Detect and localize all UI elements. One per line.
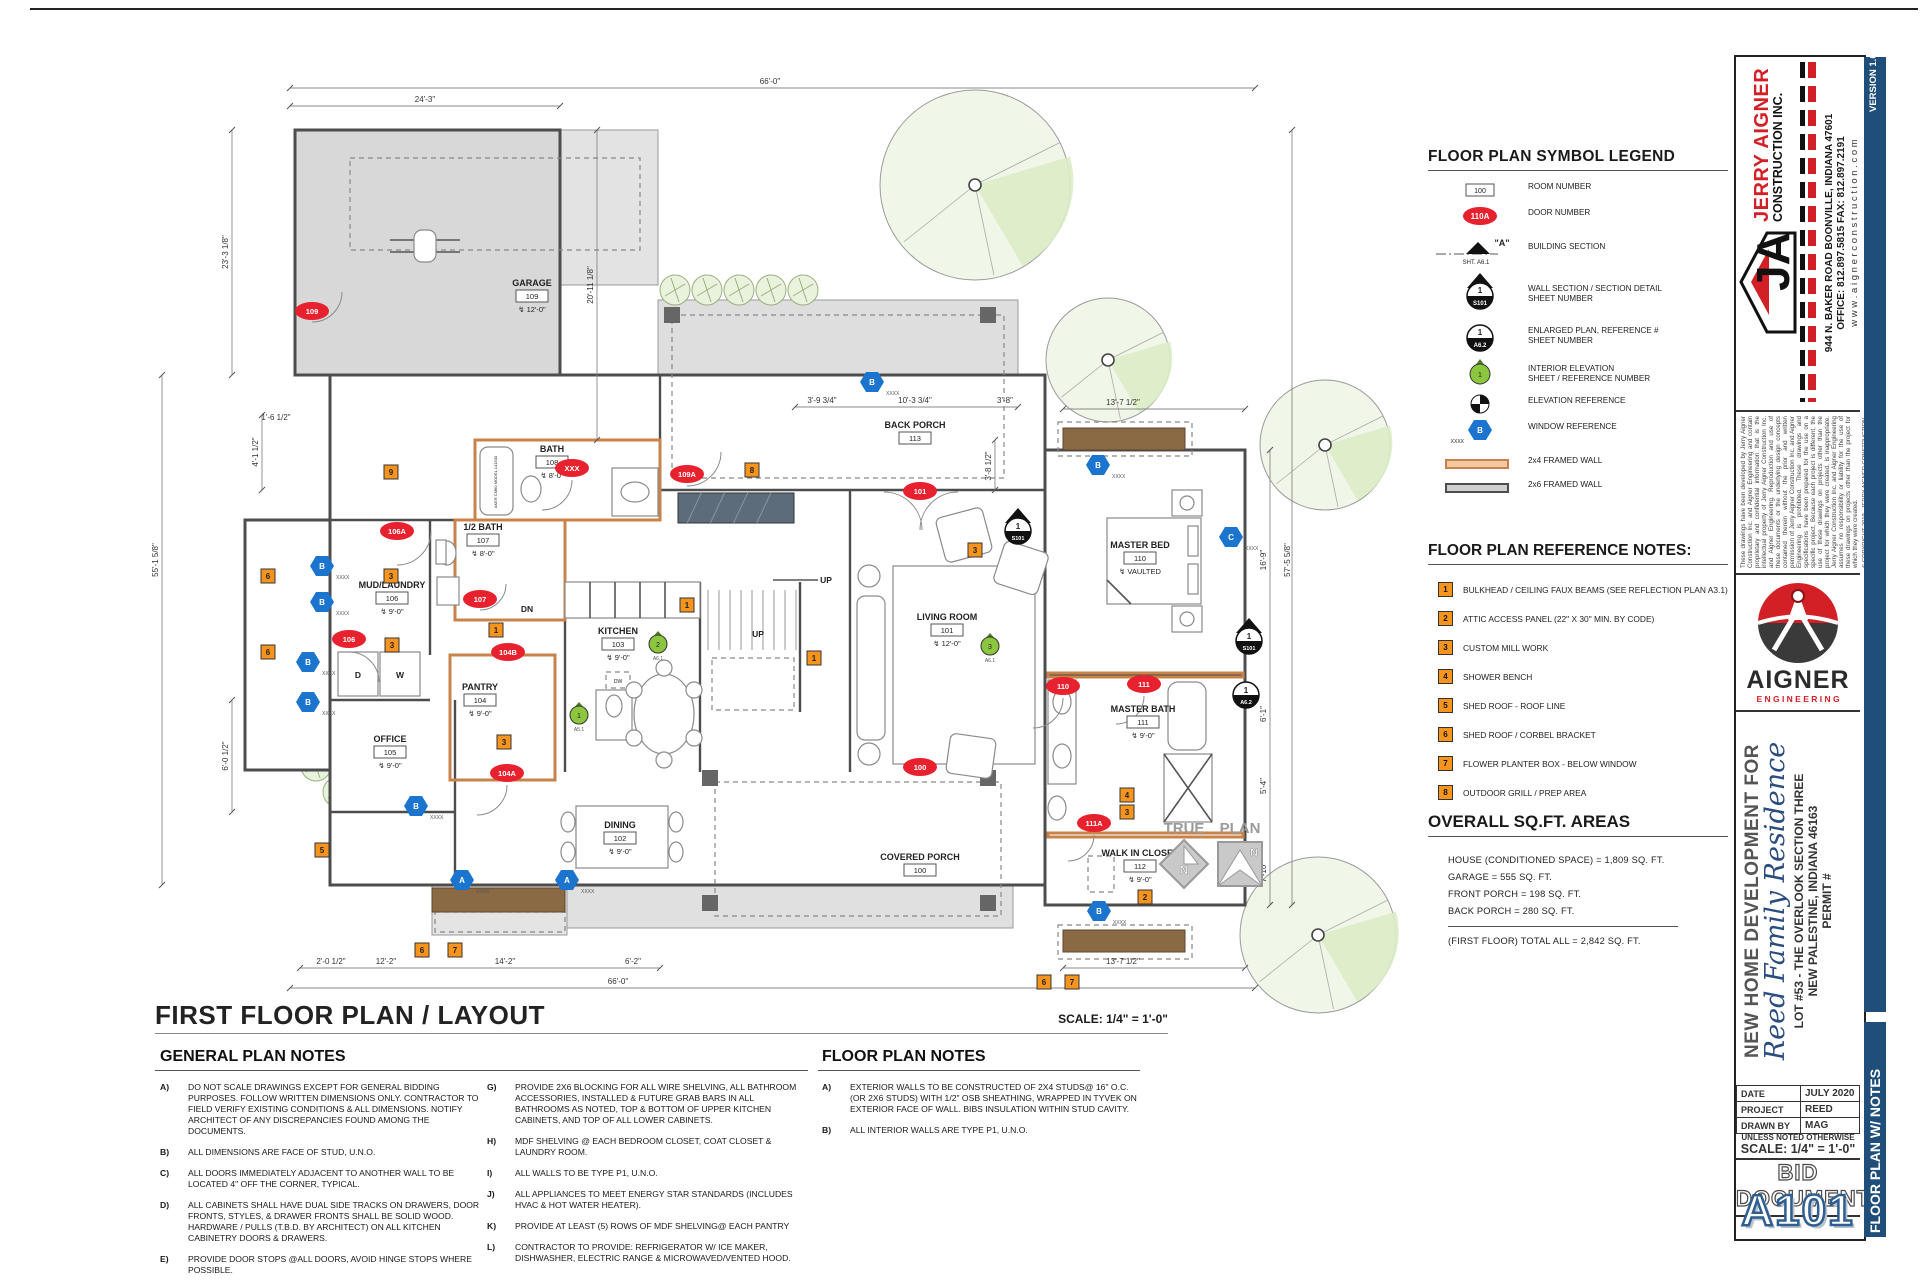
plan-annotation: DN	[521, 604, 533, 614]
refnote-number-tag: 3	[1438, 640, 1453, 655]
plan-text: XXXX	[1451, 439, 1465, 445]
north-arrows: N N	[1158, 838, 1268, 894]
interior-elev-number: 3	[988, 644, 992, 651]
window-ref-letter: A	[564, 876, 570, 885]
refnote-number-tag: 5	[1438, 698, 1453, 713]
furniture	[437, 577, 459, 605]
door-number: 111	[1138, 680, 1150, 689]
note-key: B)	[822, 1125, 850, 1136]
room-name: PANTRY	[462, 682, 498, 692]
refnote-number-tag: 2	[1438, 611, 1453, 626]
door-number: XXX	[564, 464, 579, 473]
interior-elev-sheet: A5.1	[574, 727, 585, 733]
window-ref-letter: B	[319, 562, 325, 571]
porch-column	[664, 307, 680, 323]
room-name: OFFICE	[374, 734, 407, 744]
furniture	[436, 540, 446, 564]
reference-note-number: 8	[750, 466, 755, 475]
building-section-symbol	[1466, 242, 1490, 254]
legend-item-label: 2x4 FRAMED WALL	[1528, 456, 1602, 466]
window-ref-model: XXXX	[322, 671, 336, 677]
window-ref-model: XXXX	[1112, 474, 1126, 480]
disclaimer-divider	[1736, 573, 1860, 575]
company-address-line: 944 N. BAKER ROAD BOONVILLE, INDIANA 476…	[1824, 62, 1836, 404]
room-number: 112	[1134, 862, 1146, 871]
project-city: NEW PALESTINE, INDIANA 46163	[1806, 722, 1820, 1080]
note-text: PROVIDE AT LEAST (5) ROWS OF MDF SHELVIN…	[515, 1221, 789, 1232]
refnote-text: SHOWER BENCH	[1463, 672, 1532, 682]
reference-note-number: 2	[1143, 893, 1148, 902]
refnote-item: 6SHED ROOF / CORBEL BRACKET	[1438, 727, 1728, 742]
reference-note-number: 1	[494, 626, 499, 635]
fixture	[626, 730, 642, 746]
plan-text: 100	[1474, 188, 1486, 195]
window-ref-letter: B	[305, 658, 311, 667]
note-key: D)	[160, 1200, 188, 1244]
ceiling-height: ↯ 9'-0"	[1128, 875, 1152, 884]
elev-ref-q2	[1471, 404, 1480, 413]
fixture	[656, 752, 672, 768]
reference-note-number: 1	[812, 654, 817, 663]
sqft-total: (FIRST FLOOR) TOTAL ALL = 2,842 SQ. FT.	[1448, 933, 1718, 950]
dimension-text: 4'-1 1/2"	[251, 437, 260, 466]
info-value: JULY 2020	[1801, 1086, 1860, 1102]
eng-sub: E N G I N E E R I N G	[1736, 694, 1860, 704]
info-key: DRAWN BY	[1737, 1118, 1801, 1134]
refnote-text: ATTIC ACCESS PANEL (22" X 30" MIN. BY CO…	[1463, 614, 1654, 624]
note-text: PROVIDE 2X6 BLOCKING FOR ALL WIRE SHELVI…	[515, 1082, 805, 1126]
note-key: C)	[160, 1168, 188, 1190]
window-ref-model: XXXX	[1245, 546, 1259, 552]
company-name-black: CONSTRUCTION INC.	[1772, 57, 1785, 222]
dimension-text: 66'-0"	[760, 77, 781, 86]
dimension-text: 3'-9 3/4"	[807, 396, 836, 405]
fixture	[858, 565, 880, 587]
tree-trunk	[969, 179, 981, 191]
refnote-number-tag: 6	[1438, 727, 1453, 742]
refnote-item: 4SHOWER BENCH	[1438, 669, 1728, 684]
refnote-item: 7FLOWER PLANTER BOX - BELOW WINDOW	[1438, 756, 1728, 771]
note-text: EXTERIOR WALLS TO BE CONSTRUCTED OF 2X4 …	[850, 1082, 1140, 1115]
disclaimer-text: These drawings have been developed by Je…	[1740, 416, 1859, 568]
section-sheet-number: S101	[1243, 646, 1256, 652]
wood-deck	[1063, 428, 1185, 450]
plan-annotation: D	[355, 670, 361, 680]
fixture	[669, 842, 683, 862]
note-key: A)	[160, 1082, 188, 1137]
note-item: E)PROVIDE DOOR STOPS @ALL DOORS, AVOID H…	[160, 1254, 482, 1276]
door-number: 111A	[1085, 819, 1103, 828]
dimension-text: 3'-8"	[997, 396, 1013, 405]
room-number: 110	[1134, 554, 1146, 563]
window-ref-model: XXXX	[1113, 920, 1127, 926]
note-key: I)	[487, 1168, 515, 1179]
sqft-line: FRONT PORCH = 198 SQ. FT.	[1448, 886, 1718, 903]
fixture	[858, 743, 880, 765]
sqft-line: HOUSE (CONDITIONED SPACE) = 1,809 SQ. FT…	[1448, 852, 1718, 869]
fixture	[686, 682, 702, 698]
dimension-text: 57'-5 5/8"	[1283, 543, 1292, 577]
plan-text: B	[1477, 426, 1483, 435]
plan-scale-note: SCALE: 1/4" = 1'-0"	[1000, 1012, 1168, 1026]
fixture	[686, 730, 702, 746]
sqft-line: GARAGE = 555 SQ. FT.	[1448, 869, 1718, 886]
window-ref-model: XXXX	[581, 889, 595, 895]
reference-note-number: 7	[453, 946, 458, 955]
ceiling-height: ↯ 9'-0"	[1131, 731, 1155, 740]
true-north-label: TRUE	[1158, 820, 1210, 837]
note-text: ALL DOORS IMMEDIATELY ADJACENT TO ANOTHE…	[188, 1168, 482, 1190]
sqft-list: HOUSE (CONDITIONED SPACE) = 1,809 SQ. FT…	[1448, 852, 1718, 950]
legend-item-label: WALL SECTION / SECTION DETAIL SHEET NUMB…	[1528, 284, 1662, 303]
plan-text: 1	[1478, 372, 1482, 379]
legend-title: FLOOR PLAN SYMBOL LEGEND	[1428, 148, 1675, 166]
company-address: 944 N. BAKER ROAD BOONVILLE, INDIANA 476…	[1824, 62, 1848, 404]
tree-trunk	[1312, 929, 1324, 941]
door-number: 104B	[499, 648, 518, 657]
plan-annotation: W	[396, 670, 405, 680]
note-text: MDF SHELVING @ EACH BEDROOM CLOSET, COAT…	[515, 1136, 805, 1158]
fixture	[656, 660, 672, 676]
door-number: 109A	[678, 470, 697, 479]
disclaimer: These drawings have been developed by Je…	[1740, 416, 1856, 568]
company-name-red: JERRY AIGNER	[1752, 57, 1772, 222]
legend-item-label: ENLARGED PLAN, REFERENCE # SHEET NUMBER	[1528, 326, 1659, 345]
reference-note-number: 3	[502, 738, 507, 747]
eng-divider	[1736, 710, 1860, 712]
note-text: ALL INTERIOR WALLS ARE TYPE P1, U.N.O.	[850, 1125, 1028, 1136]
reference-note-number: 3	[1125, 808, 1130, 817]
porch-column	[980, 895, 996, 911]
dimension-text: 13'-7 1/2"	[1106, 398, 1140, 407]
room-number: 101	[941, 626, 954, 635]
ceiling-height: ↯ 9'-0"	[468, 709, 492, 718]
general-notes-col1: A)DO NOT SCALE DRAWINGS EXCEPT FOR GENER…	[160, 1082, 482, 1280]
room-name: 1/2 BATH	[463, 522, 502, 532]
door-number: 110	[1057, 682, 1069, 691]
scale-note1: UNLESS NOTED OTHERWISE	[1736, 1133, 1860, 1142]
fixture	[561, 842, 575, 862]
elev-ref-q1	[1480, 395, 1489, 404]
window-ref-letter: B	[319, 598, 325, 607]
project-block: NEW HOME DEVELOPMENT FOR Reed Family Res…	[1742, 722, 1858, 1080]
room-number: 103	[612, 640, 625, 649]
wood-deck	[1063, 930, 1185, 952]
note-text: ALL APPLIANCES TO MEET ENERGY STAR STAND…	[515, 1189, 805, 1211]
scale-note2: SCALE: 1/4" = 1'-0"	[1736, 1142, 1860, 1156]
plan-annotation: UP	[820, 575, 832, 585]
fixture	[1053, 744, 1071, 768]
reference-note-number: 3	[389, 572, 394, 581]
door-number: 106A	[388, 527, 407, 536]
ceiling-height: ↯ VAULTED	[1119, 567, 1161, 576]
note-item: B)ALL DIMENSIONS ARE FACE OF STUD, U.N.O…	[160, 1147, 482, 1158]
room-number: 107	[477, 536, 490, 545]
dimension-text: 6'-1"	[1259, 706, 1268, 722]
window-ref-model: XXXX	[430, 815, 444, 821]
reference-note-number: 6	[1042, 978, 1047, 987]
plan-text: SHT. A6.1	[1463, 260, 1490, 266]
plan-annotation: DW	[614, 679, 623, 685]
room-number: 113	[909, 434, 921, 443]
info-value: REED	[1801, 1102, 1860, 1118]
legend-symbols: 100110A"A"SHT. A6.11S1011A6.21BXXXX	[1428, 176, 1523, 506]
furniture	[1168, 682, 1206, 750]
fixture	[634, 674, 694, 754]
dimension-text: 5'-4"	[1259, 778, 1268, 794]
section-sheet-number: A6.2	[1240, 700, 1252, 706]
note-text: ALL WALLS TO BE TYPE P1, U.N.O.	[515, 1168, 658, 1179]
project-lot: LOT #53 - THE OVERLOOK SECTION THREE	[1792, 722, 1806, 1080]
accent-dashes-red	[1808, 62, 1816, 402]
info-key: DATE	[1737, 1086, 1801, 1102]
refnotes-list: 1BULKHEAD / CEILING FAUX BEAMS (SEE REFL…	[1438, 582, 1728, 814]
dimension-text: 6'-2"	[625, 957, 641, 966]
note-item: J)ALL APPLIANCES TO MEET ENERGY STAR STA…	[487, 1189, 805, 1211]
door-number: 109	[306, 307, 319, 316]
fixture	[1180, 496, 1194, 510]
room-number: 104	[474, 696, 487, 705]
dimension-text: 24'-3"	[415, 95, 436, 104]
door-number: 104A	[498, 769, 517, 778]
plan-text: 1	[1478, 286, 1483, 295]
refnote-item: 1BULKHEAD / CEILING FAUX BEAMS (SEE REFL…	[1438, 582, 1728, 597]
fixture	[606, 695, 622, 717]
ceiling-height: ↯ 9'-0"	[378, 761, 402, 770]
sheet-number: A101	[1736, 1186, 1860, 1236]
fixture	[1048, 796, 1066, 820]
window-ref-model: XXXX	[336, 611, 350, 617]
furniture	[1188, 564, 1198, 594]
scale-block: UNLESS NOTED OTHERWISE SCALE: 1/4" = 1'-…	[1736, 1133, 1860, 1160]
refnote-number-tag: 7	[1438, 756, 1453, 771]
porch-column	[702, 770, 718, 786]
general-notes-col2: G)PROVIDE 2X6 BLOCKING FOR ALL WIRE SHEL…	[487, 1082, 805, 1274]
note-text: ALL DIMENSIONS ARE FACE OF STUD, U.N.O.	[188, 1147, 375, 1158]
furniture	[414, 230, 436, 262]
door-number: 101	[914, 487, 927, 496]
drawing-sheet: 66'-0"24'-3"23'-3 1/8"55'-1 5/8"4'-1 1/2…	[0, 0, 1920, 1280]
concrete-area	[560, 130, 658, 285]
info-value: MAG	[1801, 1118, 1860, 1134]
interior-elev-sheet: A6.1	[653, 656, 664, 662]
refnote-number-tag: 1	[1438, 582, 1453, 597]
note-text: CONTRACTOR TO PROVIDE: REFRIGERATOR W/ I…	[515, 1242, 805, 1264]
dimension-text: 2'-0 1/2"	[316, 957, 345, 966]
true-north-icon: N	[1160, 840, 1208, 888]
fixture	[621, 482, 649, 502]
room-number: 111	[1137, 718, 1148, 727]
window-ref-letter: B	[1095, 461, 1101, 470]
room-number: 106	[386, 594, 399, 603]
window-ref-letter: C	[1228, 533, 1234, 542]
window-ref-letter: A	[459, 876, 465, 885]
company-website: w w w . a i g n e r c o n s t r u c t i …	[1849, 62, 1862, 404]
svg-text:JA: JA	[1747, 232, 1797, 291]
note-text: PROVIDE DOOR STOPS @ALL DOORS, AVOID HIN…	[188, 1254, 482, 1276]
refnotes-rule	[1428, 564, 1728, 565]
company-divider	[1736, 410, 1860, 412]
fixture	[561, 812, 575, 832]
refnote-text: BULKHEAD / CEILING FAUX BEAMS (SEE REFLE…	[1463, 585, 1728, 595]
dimension-text: 55'-1 5/8"	[151, 543, 160, 577]
plan-text: 110A	[1471, 212, 1490, 221]
accent-dashes-black	[1800, 62, 1805, 402]
refnote-text: CUSTOM MILL WORK	[1463, 643, 1548, 653]
dimension-text: 16'-9"	[1259, 550, 1268, 571]
reference-note-number: 5	[320, 846, 325, 855]
fixture	[669, 812, 683, 832]
plan-annotation: UP	[752, 629, 764, 639]
door-number: 100	[914, 763, 927, 772]
info-row: PROJECTREED	[1737, 1102, 1860, 1118]
note-key: G)	[487, 1082, 515, 1126]
sqft-line: BACK PORCH = 280 SQ. FT.	[1448, 903, 1718, 920]
concrete-area	[565, 885, 1013, 928]
refnote-text: FLOWER PLANTER BOX - BELOW WINDOW	[1463, 759, 1637, 769]
window-ref-model: XXXX	[336, 575, 350, 581]
ceiling-height: ↯ 8'-0"	[471, 549, 495, 558]
room-name: DINING	[604, 820, 636, 830]
wall-2x4-symbol	[1446, 460, 1508, 468]
legend-item-label: WINDOW REFERENCE	[1528, 422, 1617, 432]
project-residence-name: Reed Family Residence	[1760, 722, 1791, 1080]
section-sheet-number: S101	[1012, 536, 1025, 542]
dimension-text: 66'-0"	[608, 977, 629, 986]
furniture	[1188, 526, 1198, 556]
note-item: C)ALL DOORS IMMEDIATELY ADJACENT TO ANOT…	[160, 1168, 482, 1190]
project-permit: PERMIT #	[1820, 722, 1834, 1080]
room-number: 102	[614, 834, 627, 843]
eng-name: AIGNER	[1736, 666, 1860, 695]
sqft-title: OVERALL SQ.FT. AREAS	[1428, 812, 1630, 832]
tree-trunk	[1102, 354, 1114, 366]
dimension-text: 1'-6 1/2"	[261, 413, 290, 422]
wall-2x6-symbol	[1446, 484, 1508, 492]
note-key: K)	[487, 1221, 515, 1232]
porch-column	[702, 895, 718, 911]
info-row: DRAWN BYMAG	[1737, 1118, 1860, 1134]
dimension-text: 3'-8 1/2"	[984, 451, 993, 480]
ceiling-height: ↯ 12'-0"	[933, 639, 961, 648]
sqft-divider	[1448, 926, 1678, 927]
refnote-number-tag: 8	[1438, 785, 1453, 800]
ceiling-height: ↯ 12'-0"	[518, 305, 546, 314]
note-item: A)EXTERIOR WALLS TO BE CONSTRUCTED OF 2X…	[822, 1082, 1140, 1115]
dimension-text: 14'-2"	[495, 957, 516, 966]
plan-text: 1	[1478, 328, 1483, 337]
window-ref-model: XXXX	[322, 711, 336, 717]
furniture	[857, 596, 885, 740]
note-item: H)MDF SHELVING @ EACH BEDROOM CLOSET, CO…	[487, 1136, 805, 1158]
floor-plan-notes-rule	[818, 1070, 1140, 1071]
reference-note-number: 7	[1070, 978, 1075, 987]
room-name: COVERED PORCH	[880, 852, 960, 862]
room-number: 109	[526, 292, 539, 301]
refnote-item: 8OUTDOOR GRILL / PREP AREA	[1438, 785, 1728, 800]
company-name: JERRY AIGNER CONSTRUCTION INC.	[1752, 57, 1800, 222]
plan-annotation: AKER CM60 MODEL 141500	[493, 455, 498, 508]
plan-north-label: PLAN	[1214, 820, 1266, 837]
refnote-text: SHED ROOF / CORBEL BRACKET	[1463, 730, 1596, 740]
room-name: GARAGE	[512, 278, 552, 288]
reference-note-number: 6	[266, 648, 271, 657]
door-number: 107	[474, 595, 487, 604]
legend-item-label: ELEVATION REFERENCE	[1528, 396, 1626, 406]
refnotes-title: FLOOR PLAN REFERENCE NOTES:	[1428, 542, 1692, 560]
general-notes-title: GENERAL PLAN NOTES	[160, 1048, 346, 1066]
plan-text: A6.2	[1474, 343, 1487, 349]
room-number: 105	[384, 748, 397, 757]
floor-plan-notes-list: A)EXTERIOR WALLS TO BE CONSTRUCTED OF 2X…	[822, 1082, 1140, 1146]
furniture-chair	[945, 733, 996, 779]
info-row: DATEJULY 2020	[1737, 1086, 1860, 1102]
note-key: A)	[822, 1082, 850, 1115]
door-number: 106	[343, 635, 356, 644]
dimension-text: 10'-3 3/4"	[898, 396, 932, 405]
note-text: DO NOT SCALE DRAWINGS EXCEPT FOR GENERAL…	[188, 1082, 482, 1137]
legend-item-label: ROOM NUMBER	[1528, 182, 1591, 192]
note-item: D)ALL CABINETS SHALL HAVE DUAL SIDE TRAC…	[160, 1200, 482, 1244]
legend-item-label: INTERIOR ELEVATION SHEET / REFERENCE NUM…	[1528, 364, 1650, 383]
reference-note-number: 9	[389, 468, 394, 477]
dimension-text: 20'-11 1/8"	[586, 266, 595, 304]
dimension-text: 12'-2"	[376, 957, 397, 966]
info-key: PROJECT	[1737, 1102, 1801, 1118]
reference-note-number: 3	[390, 641, 395, 650]
company-phones: OFFICE: 812.897.5815 FAX: 812.897.2191	[1836, 62, 1848, 404]
reference-note-number: 6	[266, 572, 271, 581]
dimension-text: 6'-0 1/2"	[221, 741, 230, 770]
general-notes-rule	[155, 1070, 808, 1071]
refnote-text: OUTDOOR GRILL / PREP AREA	[1463, 788, 1586, 798]
dimension-text: 13'-7 1/2"	[1106, 957, 1140, 966]
version-label: VERSION 1.01	[1868, 60, 1883, 112]
room-name: KITCHEN	[598, 626, 638, 636]
legend-item-label: BUILDING SECTION	[1528, 242, 1605, 252]
refnote-item: 3CUSTOM MILL WORK	[1438, 640, 1728, 655]
note-item: B)ALL INTERIOR WALLS ARE TYPE P1, U.N.O.	[822, 1125, 1140, 1136]
legend-item-label: DOOR NUMBER	[1528, 208, 1590, 218]
note-item: A)DO NOT SCALE DRAWINGS EXCEPT FOR GENER…	[160, 1082, 482, 1137]
note-key: H)	[487, 1136, 515, 1158]
window-ref-letter: B	[869, 378, 875, 387]
window-ref-letter: B	[413, 802, 419, 811]
reference-note-number: 1	[685, 601, 690, 610]
note-item: I)ALL WALLS TO BE TYPE P1, U.N.O.	[487, 1168, 805, 1179]
refnote-item: 2ATTIC ACCESS PANEL (22" X 30" MIN. BY C…	[1438, 611, 1728, 626]
note-text: ALL CABINETS SHALL HAVE DUAL SIDE TRACKS…	[188, 1200, 482, 1244]
ceiling-height: ↯ 9'-0"	[380, 607, 404, 616]
refnote-text: SHED ROOF - ROOF LINE	[1463, 701, 1565, 711]
note-key: J)	[487, 1189, 515, 1211]
sheet-title-vertical: FLOOR PLAN W/ NOTES	[1867, 1025, 1883, 1233]
legend-rule	[1428, 170, 1728, 171]
window-ref-letter: B	[1096, 907, 1102, 916]
note-item: K)PROVIDE AT LEAST (5) ROWS OF MDF SHELV…	[487, 1221, 805, 1232]
room-name: BATH	[540, 444, 564, 454]
fixture	[1180, 612, 1194, 626]
fixture	[626, 682, 642, 698]
aigner-engineering-logo	[1746, 580, 1850, 666]
plan-text: S101	[1473, 301, 1488, 307]
note-key: B)	[160, 1147, 188, 1158]
reference-note-number: 3	[973, 546, 978, 555]
company-logo: JA	[1739, 225, 1797, 340]
legend-item-label: 2x6 FRAMED WALL	[1528, 480, 1602, 490]
info-table: DATEJULY 2020PROJECTREEDDRAWN BYMAG	[1736, 1085, 1860, 1134]
note-item: L)CONTRACTOR TO PROVIDE: REFRIGERATOR W/…	[487, 1242, 805, 1264]
